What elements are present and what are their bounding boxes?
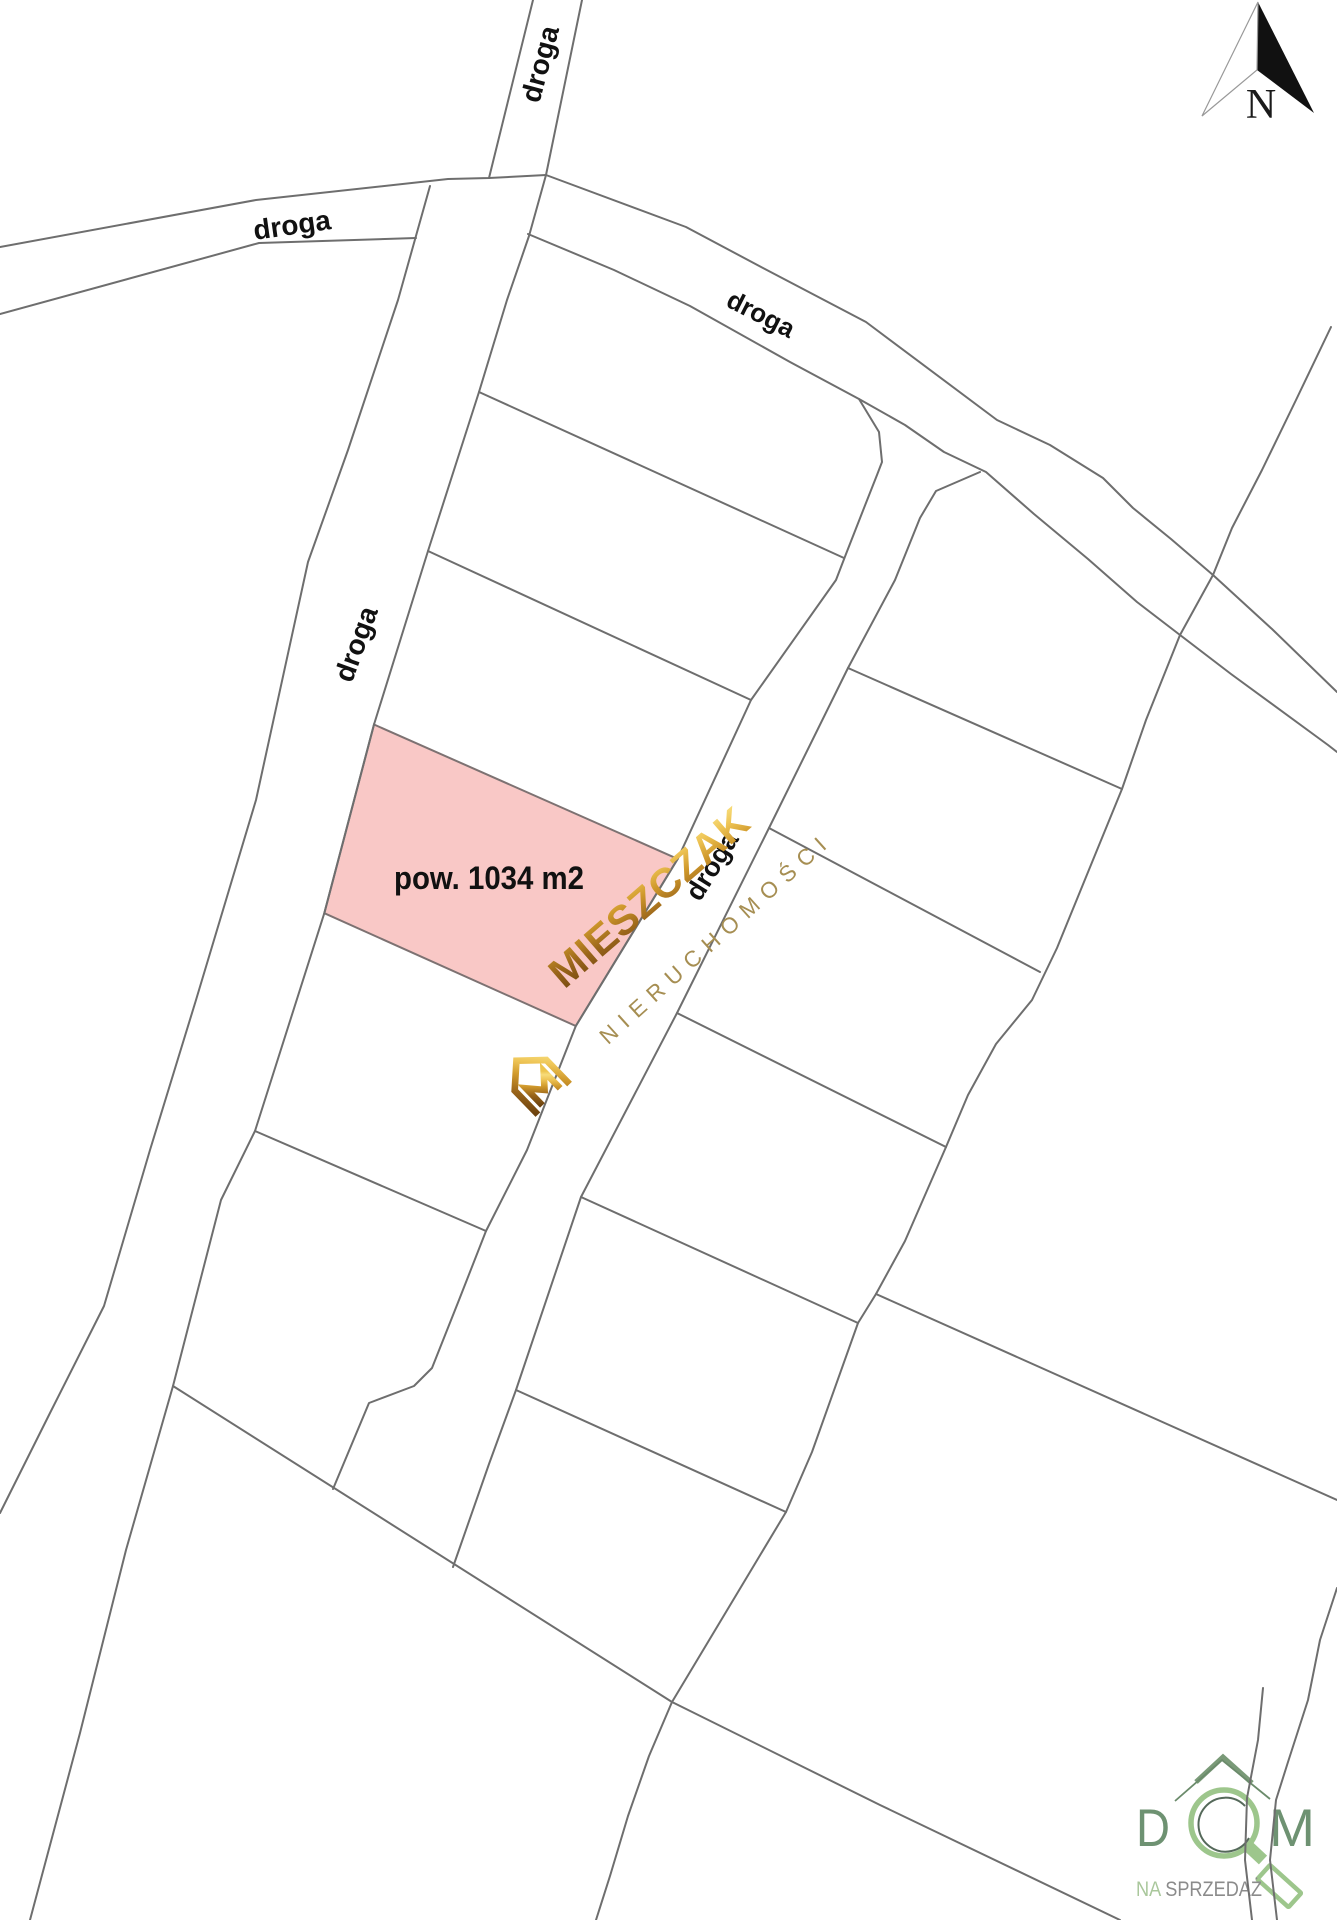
- svg-text:N: N: [1246, 82, 1276, 128]
- svg-text:droga: droga: [515, 22, 565, 106]
- svg-text:pow. 1034 m2: pow. 1034 m2: [394, 860, 584, 896]
- svg-text:droga: droga: [328, 602, 384, 686]
- svg-text:droga: droga: [251, 204, 333, 246]
- svg-text:droga: droga: [722, 284, 800, 344]
- svg-text:NA SPRZEDAŻ: NA SPRZEDAŻ: [1136, 1877, 1262, 1901]
- svg-text:D: D: [1136, 1799, 1170, 1858]
